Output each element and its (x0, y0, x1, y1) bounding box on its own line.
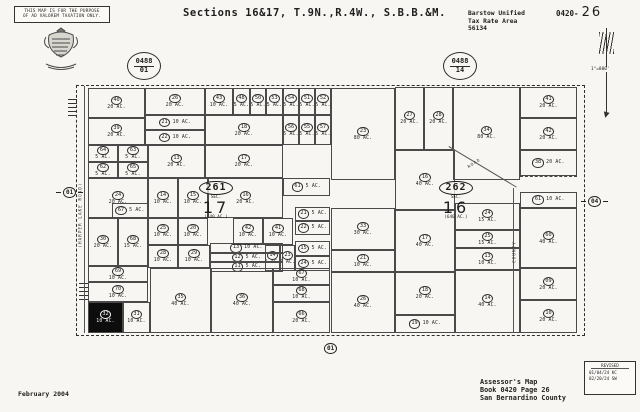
parcel-acreage: 10 AC. (269, 234, 288, 239)
assessor-block-261: 261 (199, 181, 232, 195)
parcel-70: 7010 AC. (88, 282, 148, 302)
parcel-acreage: 5 AC. (315, 104, 330, 109)
parcel-number: 35 (175, 293, 186, 302)
parcel-31: 3110 AC. (123, 302, 150, 333)
parcel-number: 68 (296, 286, 307, 295)
parcel-acreage: 5 AC. (95, 156, 110, 161)
parcel-number: 55 (301, 123, 312, 132)
parcel-number: 14 (482, 294, 493, 303)
parcel-acreage: 20 AC. (107, 106, 126, 111)
road-label-county: COUNTY (512, 241, 517, 263)
parcel-number: 22 (159, 133, 170, 142)
marker-dash (603, 201, 608, 202)
parcel-13: 1310 AC. (210, 243, 283, 253)
parcel-number: 61 (532, 195, 543, 204)
parcel-18: 1820 AC. (205, 115, 283, 145)
ref-book: 0488 (136, 58, 153, 66)
parcel-number: 23 (357, 127, 368, 136)
parcel-acreage: 5 AC. (312, 247, 327, 252)
parcel-number: 23 (282, 251, 293, 260)
parcel-61: 615 AC. (283, 178, 330, 196)
parcel-acreage: 80 AC. (354, 137, 373, 142)
parcel-number: 19 (409, 319, 420, 328)
parcel-41: 4120 AC. (520, 87, 577, 118)
parcel-13: 1320 AC. (148, 145, 205, 178)
marker-number: 01 (63, 187, 76, 198)
parcel-33: 3330 AC. (331, 208, 395, 250)
parcel-19: 1910 AC. (395, 315, 455, 333)
parcel-number: 61 (292, 182, 303, 191)
parcel-number: 14 (157, 191, 168, 200)
parcel-acreage: 10 AC. (244, 246, 263, 251)
parcel-number: 16 (419, 173, 430, 182)
parcel-22: 2210 AC. (145, 130, 205, 145)
map-date: February 2004 (18, 390, 69, 398)
parcel-acreage: 10 AC. (354, 264, 373, 269)
parcel-22: 225 AC. (295, 221, 330, 235)
parcel-number: 65 (127, 163, 138, 172)
parcel-acreage: 80 AC. (477, 136, 496, 141)
parcel-62: 625 AC. (88, 162, 118, 178)
highway-marker-01-bottom: 01 (324, 343, 337, 354)
parcel-acreage: 20 AC. (539, 105, 558, 110)
parcel-number: 56 (285, 123, 296, 132)
parcel-57: 575 AC. (315, 115, 331, 145)
parcel-acreage: 5 AC. (315, 133, 330, 138)
parcel-acreage: 5 AC. (306, 185, 321, 190)
assessors-map-block: Assessor's Map Book 0420 Page 26 San Ber… (480, 379, 566, 402)
parcel-number: 18 (419, 286, 430, 295)
parcel-acreage: 20 AC. (416, 296, 435, 301)
parcel-number: 17 (419, 234, 430, 243)
parcel-number: 27 (404, 111, 415, 120)
parcel-68: 6815 AC. (118, 218, 148, 266)
parcel-28: 2820 AC. (424, 87, 453, 150)
parcel-number: 57 (317, 123, 328, 132)
parcel-acreage: 10 AC. (546, 198, 565, 203)
parcel-14: 1410 AC. (148, 178, 178, 218)
parcel-acreage: 40 AC. (416, 183, 435, 188)
parcel-acreage: 5 AC. (95, 173, 110, 178)
parcel-60: 6040 AC. (520, 208, 577, 268)
parcel-number: 24 (112, 191, 123, 200)
parcel-acreage: 5 AC. (250, 104, 265, 109)
parcel-number: 68 (127, 235, 138, 244)
parcel-acreage: 5 AC. (312, 262, 327, 267)
parcel-acreage: 40 AC. (233, 303, 252, 308)
parcel-number: 63 (127, 146, 138, 155)
parcel-number: 64 (97, 146, 108, 155)
parcel-acreage: 15 AC. (478, 242, 497, 247)
boundary-tick-marks (68, 99, 77, 119)
parcel-21: 2110 AC. (331, 250, 395, 272)
dashed-lot-line (520, 176, 577, 177)
parcel-63: 635 AC. (118, 145, 148, 162)
parcel-42: 4210 AC. (233, 218, 263, 245)
assessor-block-262: 262 (439, 181, 472, 195)
parcel-acreage: 30 AC. (354, 232, 373, 237)
parcel-29: 2910 AC. (178, 245, 210, 268)
parcel-acreage: 5 AC. (267, 104, 282, 109)
parcel-acreage: 20 AC. (539, 319, 558, 324)
parcel-25: 2510 AC. (148, 218, 178, 245)
parcel-number: 38 (532, 158, 543, 167)
parcel-28: 2810 AC. (148, 245, 178, 268)
parcel-number: 17 (238, 154, 249, 163)
parcel-acreage: 5 AC. (283, 133, 298, 138)
parcel-41: 4110 AC. (263, 218, 293, 245)
parcel-65: 655 AC. (118, 162, 148, 178)
footer-line3: San Bernardino County (480, 395, 566, 403)
parcel-68: 6810 AC. (273, 285, 330, 302)
parcel-number: 21 (159, 118, 170, 127)
parcel-acreage: 5 AC. (129, 209, 144, 214)
parcel-number: 34 (481, 126, 492, 135)
parcel-acreage: 20 AC. (539, 137, 558, 142)
parcel-acreage: 5 AC. (299, 104, 314, 109)
parcel-10: 1020 AC. (520, 300, 577, 333)
parcel-acreage: 10 AC. (478, 262, 497, 267)
parcel-acreage: 20 AC. (166, 104, 185, 109)
parcel-acreage: 40 AC. (416, 244, 435, 249)
parcel-acreage: 20 AC. (235, 164, 254, 169)
parcel-number: 39 (111, 124, 122, 133)
parcel-acreage: 10 AC. (154, 201, 173, 206)
marker-number: 04 (588, 196, 601, 207)
parcel-number: 42 (242, 224, 253, 233)
parcel-acreage: 5 AC. (299, 133, 314, 138)
parcel-acreage: 5 AC. (246, 256, 261, 261)
parcel-14: 1440 AC. (455, 270, 520, 333)
parcel-number: 30 (97, 235, 108, 244)
parcel-43: 4310 AC. (205, 88, 233, 115)
parcel-acreage: 10 AC. (185, 259, 204, 264)
parcel-number: 16 (240, 191, 251, 200)
parcel-number: 18 (238, 123, 249, 132)
parcel-acreage: 10 AC. (423, 322, 442, 327)
parcel-acreage: 40 AC. (478, 304, 497, 309)
parcel-17: 1720 AC. (205, 145, 283, 178)
revision-title: REVISED (591, 363, 629, 369)
parcel-number: 25 (482, 232, 493, 241)
parcel-acreage: 10 AC. (292, 279, 311, 284)
marker-dash (78, 192, 83, 193)
parcel-69: 6910 AC. (88, 266, 148, 282)
parcel-acreage: 5 AC. (234, 104, 249, 109)
parcel-number: 29 (188, 249, 199, 258)
parcel-acreage: 40 AC. (539, 241, 558, 246)
parcel-acreage: 20 AC. (429, 121, 448, 126)
parcel-acreage: 10 AC. (173, 121, 192, 126)
parcel-acreage: 20 AC. (107, 134, 126, 139)
parcel-acreage: 10 AC. (239, 234, 258, 239)
parcel-acreage: 20 AC. (400, 121, 419, 126)
parcel-number: 31 (131, 310, 142, 319)
parcel-number: 13 (230, 243, 241, 252)
parcel-acreage: 5 AC. (125, 156, 140, 161)
parcel-64: 645 AC. (88, 145, 118, 162)
parcel-number: 20 (187, 224, 198, 233)
parcel-26: 2620 AC. (145, 88, 205, 115)
parcel-number: 42 (543, 127, 554, 136)
parcel-number: 13 (482, 252, 493, 261)
parcel-acreage: 20 AC. (94, 245, 113, 250)
parcel-55: 555 AC. (299, 115, 315, 145)
parcel-acreage: 10 AC. (109, 295, 128, 300)
parcel-number: 24 (298, 259, 309, 268)
parcel-34: 3480 AC. (453, 87, 520, 180)
parcel-15: 155 AC. (295, 241, 330, 256)
parcel-acreage: 20 AC. (539, 287, 558, 292)
marker-dash (581, 201, 586, 202)
parcel-acreage: 15 AC. (124, 245, 143, 250)
parcel-number: 21 (298, 209, 309, 218)
parcel-number: 54 (285, 94, 296, 103)
parcel-13: 1310 AC. (455, 248, 520, 270)
parcel-number: 69 (112, 267, 123, 276)
parcel-48: 485 AC. (233, 88, 250, 115)
ref-page: 01 (134, 66, 154, 75)
revision-entry: 02/20/24 SW (585, 376, 635, 382)
parcel-acreage: 10 AC. (154, 234, 173, 239)
parcel-40: 4020 AC. (88, 88, 145, 118)
parcel-acreage: 10 AC. (210, 104, 229, 109)
ref-page: 14 (450, 66, 470, 75)
page-ref-0488-01: 0488 01 (127, 52, 161, 80)
parcel-number: 15 (298, 244, 309, 253)
parcel-acreage: 15 AC. (478, 219, 497, 224)
parcel-54: 545 AC. (283, 88, 299, 115)
parcel-53: 535 AC. (266, 88, 283, 115)
parcel-number: 21 (357, 254, 368, 263)
parcel-number: 67 (115, 206, 126, 215)
section-number-17: 17 (203, 200, 229, 216)
section-number-16: 16 (443, 200, 469, 216)
parcel-23: 2380 AC. (331, 88, 395, 180)
parcel-acreage: 5 AC. (125, 173, 140, 178)
parcel-number: 26 (357, 295, 368, 304)
parcel-32: 3210 AC. (88, 302, 123, 333)
parcel-67: 6710 AC. (273, 268, 330, 285)
parcel-number: 53 (269, 94, 280, 103)
parcel-acreage: 20 AC. (236, 201, 255, 206)
marker-dash (56, 192, 61, 193)
parcel-number: 41 (272, 224, 283, 233)
parcel-number: 36 (236, 293, 247, 302)
parcel-21: 215 AC. (295, 207, 330, 221)
parcel-acreage: 20 AC. (167, 164, 186, 169)
parcel-acreage: 40 AC. (354, 305, 373, 310)
parcel-number: 41 (543, 95, 554, 104)
parcel-number: 10 (543, 309, 554, 318)
harper-lake-road-line (84, 86, 85, 333)
parcel-09: 0920 AC. (520, 268, 577, 300)
parcel-38: 3820 AC. (520, 150, 577, 176)
parcel-number: 12 (232, 253, 243, 262)
parcel-grid: 4020 AC.2620 AC.4310 AC.485 AC.505 AC.53… (0, 0, 640, 412)
parcel-number: 52 (317, 94, 328, 103)
highway-marker-04-right: 04 (581, 196, 608, 207)
parcel-51: 515 AC. (299, 88, 315, 115)
parcel-acreage: 10 AC. (109, 277, 128, 282)
parcel-number: 28 (157, 249, 168, 258)
parcel-acreage: 20 AC. (235, 133, 254, 138)
parcel-12: 125 AC. (210, 253, 283, 262)
parcel-acreage: 5 AC. (312, 226, 327, 231)
parcel-56: 565 AC. (283, 115, 299, 145)
parcel-39: 3920 AC. (88, 118, 145, 145)
parcel-67: 675 AC. (112, 203, 148, 218)
parcel-25: 2515 AC. (455, 230, 520, 248)
parcel-acreage: 20 AC. (292, 320, 311, 325)
parcel-acreage: 10 AC. (184, 234, 203, 239)
parcel-acreage: 10 AC. (154, 259, 173, 264)
section-16-label: 262 SEC. 16 (640 AC.) (434, 181, 478, 221)
parcel-acreage: 10 AC. (96, 320, 115, 325)
highway-marker-01-left: 01 (56, 187, 83, 198)
section-acreage: (640 AC.) (204, 216, 227, 220)
parcel-number: 32 (100, 310, 111, 319)
parcel-42: 4220 AC. (520, 118, 577, 150)
parcel-number: 26 (169, 94, 180, 103)
parcel-18: 1820 AC. (395, 272, 455, 315)
parcel-acreage: 10 AC. (292, 296, 311, 301)
parcel-36: 3640 AC. (211, 268, 273, 333)
parcel-number: 66 (296, 310, 307, 319)
parcel-acreage: 5 AC. (312, 212, 327, 217)
parcel-number: 67 (296, 269, 307, 278)
parcel-27: 2720 AC. (395, 87, 424, 150)
parcel-35: 3540 AC. (150, 268, 211, 333)
parcel-26: 2640 AC. (331, 272, 395, 333)
parcel-number: 62 (97, 163, 108, 172)
ref-book: 0488 (452, 58, 469, 66)
parcel-number: 09 (543, 277, 554, 286)
parcel-52: 525 AC. (315, 88, 331, 115)
parcel-number: 28 (433, 111, 444, 120)
parcel-30: 3020 AC. (88, 218, 118, 266)
parcel-number: 70 (112, 285, 123, 294)
parcel-number: 22 (298, 223, 309, 232)
revision-box: REVISED 01/04/24 KC 02/20/24 SW (584, 361, 636, 395)
parcel-number: 13 (171, 154, 182, 163)
parcel-acreage: 5 AC. (283, 104, 298, 109)
section-17-label: 261 SEC. 17 (640 AC.) (194, 181, 238, 221)
parcel-number: 50 (252, 94, 263, 103)
marker-number: 01 (324, 343, 337, 354)
parcel-number: 48 (236, 94, 247, 103)
section-acreage: (640 AC.) (444, 216, 467, 220)
parcel-number: 25 (157, 224, 168, 233)
page-ref-0488-14: 0488 14 (443, 52, 477, 80)
parcel-61: 6110 AC. (520, 192, 577, 208)
parcel-20: 2010 AC. (178, 218, 208, 245)
parcel-50: 505 AC. (250, 88, 266, 115)
parcel-acreage: 40 AC. (171, 303, 190, 308)
parcel-acreage: 10 AC. (173, 136, 192, 141)
parcel-66: 6620 AC. (273, 302, 330, 333)
parcel-number: 60 (543, 231, 554, 240)
parcel-acreage: 10 AC. (127, 320, 146, 325)
parcel-number: 43 (213, 94, 224, 103)
parcel-number: 51 (301, 94, 312, 103)
parcel-number: 24 (482, 209, 493, 218)
parcel-acreage: 20 AC. (546, 161, 565, 166)
parcel-21: 2110 AC. (145, 115, 205, 130)
parcel-number: 33 (357, 222, 368, 231)
parcel-number: 40 (111, 96, 122, 105)
